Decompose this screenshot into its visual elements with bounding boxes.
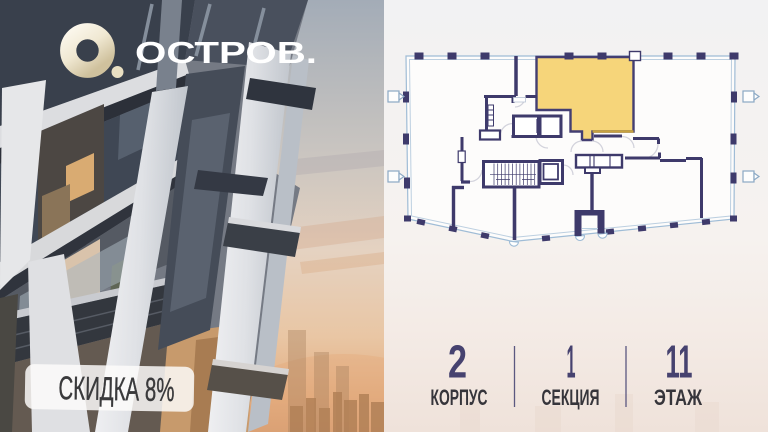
svg-text:2: 2 <box>448 336 467 388</box>
svg-text:СЕКЦИЯ: СЕКЦИЯ <box>542 385 600 410</box>
svg-text:КОРПУС: КОРПУС <box>431 385 488 410</box>
svg-text:ОСТРОВ.: ОСТРОВ. <box>135 36 317 70</box>
svg-text:СКИДКА 8%: СКИДКА 8% <box>58 369 175 408</box>
svg-text:11: 11 <box>666 336 693 388</box>
svg-text:ЭТАЖ: ЭТАЖ <box>654 385 702 410</box>
svg-text:1: 1 <box>567 336 576 388</box>
